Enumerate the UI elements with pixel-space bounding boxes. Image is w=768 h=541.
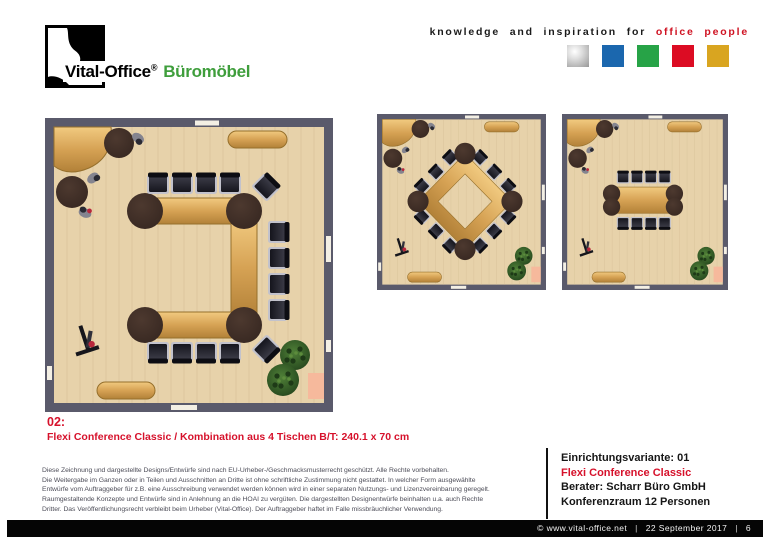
plan-caption: 02: Flexi Conference Classic / Kombinati… [47,415,409,443]
disclaimer-line: Diese Zeichnung und dargestellte Designs… [42,466,490,476]
disclaimer-line: Raumgestaltende Konzepte und Entwürfe si… [42,495,490,505]
floorplan-variant-straight [562,114,728,290]
disclaimer-line: Dritter. Das Veröffentlichungsrecht verb… [42,505,490,515]
variant-info-box: Einrichtungsvariante: 01 Flexi Conferenc… [546,448,710,519]
footer-url: © www.vital-office.net [537,523,627,533]
brand-name: Vital-Office® [63,61,158,82]
plan-number: 02: [47,415,409,429]
footer-date: 22 September 2017 [646,523,727,533]
product-line-label: Büromöbel [163,62,250,81]
brand-color-squares [567,45,729,67]
disclaimer-line: Entwürfe vom Auftraggeber für z.B. eine … [42,485,490,495]
tagline: knowledge and inspiration for office peo… [430,26,749,38]
footer-page-number: 6 [746,523,751,533]
brand-square [672,45,694,67]
disclaimer-line: Die Weitergabe im Ganzen oder in Teilen … [42,476,490,486]
floorplan-main-u-shape [45,118,333,412]
legal-disclaimer: Diese Zeichnung und dargestellte Designs… [42,466,490,515]
brand-square [567,45,589,67]
floorplan-variant-diamond [377,114,546,290]
tagline-red-part: office people [656,26,749,38]
consultant-label: Berater: Scharr Büro GmbH [561,480,710,495]
footer-separator: | [635,523,638,533]
brand-square [602,45,624,67]
brand-square [707,45,729,67]
variant-label: Einrichtungsvariante: 01 [561,451,710,466]
footer-bar: © www.vital-office.net|22 September 2017… [7,520,763,537]
brand-square [637,45,659,67]
room-label: Konferenzraum 12 Personen [561,495,710,510]
logo-wordmark: Vital-Office®Büromöbel [63,62,250,82]
product-name: Flexi Conference Classic [561,466,710,481]
plan-description: Flexi Conference Classic / Kombination a… [47,431,409,443]
footer-separator: | [735,523,738,533]
